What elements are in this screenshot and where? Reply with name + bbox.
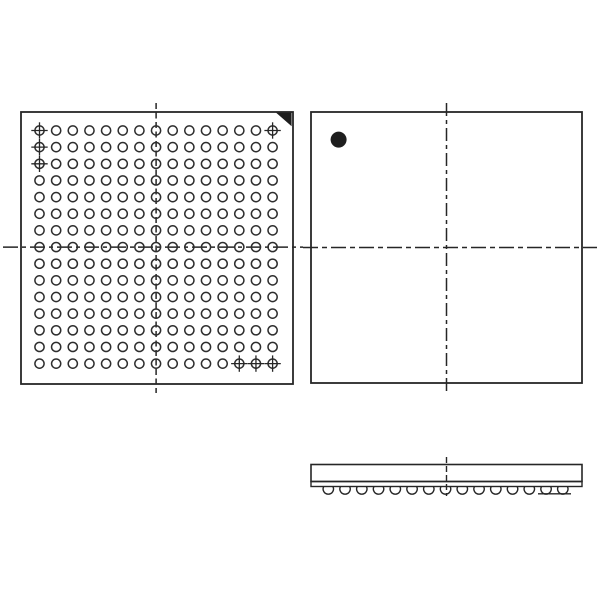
ball [35, 193, 44, 202]
ball [68, 342, 77, 351]
ball [185, 276, 194, 285]
ball [235, 226, 244, 235]
ball [235, 209, 244, 218]
ball [251, 193, 260, 202]
ball [201, 359, 210, 368]
ball [102, 143, 111, 152]
ball [118, 326, 127, 335]
ball [102, 226, 111, 235]
pin1-dot-marker [331, 132, 347, 148]
ball [52, 209, 61, 218]
ball [85, 159, 94, 168]
solder-ball-bump [457, 487, 467, 495]
ball [268, 209, 277, 218]
ball [168, 143, 177, 152]
ball [201, 276, 210, 285]
ball [251, 209, 260, 218]
ball [118, 292, 127, 301]
solder-ball-bump [558, 487, 568, 495]
ball [85, 259, 94, 268]
ball [251, 309, 260, 318]
ball [218, 326, 227, 335]
ball [102, 359, 111, 368]
ball [185, 326, 194, 335]
ball [35, 226, 44, 235]
ball [251, 126, 260, 135]
solder-ball-bump [524, 487, 534, 495]
ball [268, 259, 277, 268]
solder-ball-bump [507, 487, 517, 495]
ball [68, 176, 77, 185]
ball [201, 143, 210, 152]
ball [118, 226, 127, 235]
ball [102, 209, 111, 218]
ball [168, 359, 177, 368]
ball [52, 259, 61, 268]
ball [52, 292, 61, 301]
package-side-view [311, 457, 582, 496]
ball [251, 143, 260, 152]
ball [52, 193, 61, 202]
ball [85, 342, 94, 351]
ball [102, 292, 111, 301]
ball [118, 259, 127, 268]
ball [68, 126, 77, 135]
ball [185, 226, 194, 235]
ball [102, 176, 111, 185]
ball [135, 159, 144, 168]
ball [85, 126, 94, 135]
ball [52, 143, 61, 152]
ball [68, 259, 77, 268]
ball [35, 342, 44, 351]
ball [118, 193, 127, 202]
ball [52, 159, 61, 168]
ball [35, 259, 44, 268]
ball [218, 276, 227, 285]
ball [185, 143, 194, 152]
ball [235, 176, 244, 185]
ball [68, 209, 77, 218]
ball [35, 276, 44, 285]
ball [168, 126, 177, 135]
ball [201, 226, 210, 235]
solder-ball-bump [357, 487, 367, 495]
ball [118, 209, 127, 218]
ball [52, 342, 61, 351]
ball [235, 159, 244, 168]
ball [185, 159, 194, 168]
ball [168, 259, 177, 268]
ball [218, 309, 227, 318]
ball [52, 359, 61, 368]
ball [85, 276, 94, 285]
solder-ball-bump [491, 487, 501, 495]
ball [235, 126, 244, 135]
ball [218, 342, 227, 351]
ball [218, 226, 227, 235]
ball [68, 292, 77, 301]
solder-ball-bump [440, 487, 450, 495]
ball [268, 193, 277, 202]
ball [251, 226, 260, 235]
ball [68, 309, 77, 318]
ball [168, 326, 177, 335]
ball [251, 292, 260, 301]
ball [118, 276, 127, 285]
ball [268, 159, 277, 168]
ball [118, 309, 127, 318]
ball [135, 226, 144, 235]
ball [135, 209, 144, 218]
ball [68, 193, 77, 202]
ball [52, 276, 61, 285]
ball [68, 359, 77, 368]
ball [168, 226, 177, 235]
ball [168, 309, 177, 318]
ball [102, 193, 111, 202]
bga-bottom-view [3, 103, 303, 393]
ball [118, 143, 127, 152]
ball [201, 326, 210, 335]
ball [135, 276, 144, 285]
ball [185, 176, 194, 185]
ball [235, 309, 244, 318]
ball [135, 309, 144, 318]
ball [218, 259, 227, 268]
ball [218, 143, 227, 152]
ball [218, 176, 227, 185]
ball [168, 209, 177, 218]
ball [168, 342, 177, 351]
ball [201, 309, 210, 318]
ball [235, 259, 244, 268]
ball [85, 226, 94, 235]
ball [268, 309, 277, 318]
ball [235, 326, 244, 335]
package-outline-drawing [0, 0, 600, 600]
ball [251, 326, 260, 335]
ball [268, 276, 277, 285]
ball [85, 193, 94, 202]
ball [201, 176, 210, 185]
ball [118, 126, 127, 135]
ball [85, 326, 94, 335]
ball [68, 143, 77, 152]
ball [85, 359, 94, 368]
ball [135, 292, 144, 301]
ball [118, 342, 127, 351]
ball [168, 176, 177, 185]
ball [235, 143, 244, 152]
ball [135, 259, 144, 268]
ball [35, 209, 44, 218]
ball [118, 159, 127, 168]
pin1-corner-triangle-marker [276, 113, 292, 127]
ball [135, 326, 144, 335]
ball [52, 309, 61, 318]
ball [185, 309, 194, 318]
ball [251, 159, 260, 168]
ball [251, 259, 260, 268]
solder-ball-bump [474, 487, 484, 495]
ball [268, 326, 277, 335]
ball [102, 259, 111, 268]
ball [201, 259, 210, 268]
ball [185, 359, 194, 368]
ball [185, 259, 194, 268]
ball [251, 176, 260, 185]
ball [235, 193, 244, 202]
ball [135, 143, 144, 152]
ball [102, 126, 111, 135]
ball [235, 342, 244, 351]
side-view-ball-row [323, 487, 568, 495]
solder-ball-bump [373, 487, 383, 495]
ball [268, 342, 277, 351]
ball [135, 193, 144, 202]
ball [268, 176, 277, 185]
ball [35, 292, 44, 301]
ball [68, 326, 77, 335]
ball [35, 176, 44, 185]
ball [201, 126, 210, 135]
ball [52, 226, 61, 235]
ball [102, 276, 111, 285]
solder-ball-bump [407, 487, 417, 495]
ball [102, 309, 111, 318]
ball [268, 292, 277, 301]
ball [52, 176, 61, 185]
ball [135, 176, 144, 185]
ball [185, 209, 194, 218]
ball [68, 226, 77, 235]
ball [235, 292, 244, 301]
ball [185, 126, 194, 135]
ball [68, 276, 77, 285]
ball [52, 326, 61, 335]
ball [268, 226, 277, 235]
ball [218, 126, 227, 135]
ball [118, 359, 127, 368]
ball [102, 159, 111, 168]
ball [201, 159, 210, 168]
ball [85, 176, 94, 185]
ball [68, 159, 77, 168]
ball [102, 326, 111, 335]
ball [185, 342, 194, 351]
ball [85, 209, 94, 218]
ball [135, 126, 144, 135]
ball [35, 326, 44, 335]
solder-ball-bump [541, 487, 551, 495]
ball [201, 209, 210, 218]
ball [218, 292, 227, 301]
ball [235, 276, 244, 285]
ball [201, 342, 210, 351]
ball [168, 193, 177, 202]
solder-ball-bump [424, 487, 434, 495]
ball [168, 159, 177, 168]
ball [135, 342, 144, 351]
ball [268, 143, 277, 152]
ball [185, 292, 194, 301]
ball [201, 292, 210, 301]
ball [118, 176, 127, 185]
ball [85, 292, 94, 301]
ball [218, 209, 227, 218]
ball [185, 193, 194, 202]
ball [102, 342, 111, 351]
package-top-view [303, 103, 597, 394]
ball [135, 359, 144, 368]
ball [168, 276, 177, 285]
solder-ball-bump [323, 487, 333, 495]
ball [201, 193, 210, 202]
ball [251, 342, 260, 351]
ball [52, 126, 61, 135]
ball [85, 309, 94, 318]
ball [35, 359, 44, 368]
ball [218, 159, 227, 168]
solder-ball-bump [340, 487, 350, 495]
solder-ball-bump [390, 487, 400, 495]
ball [218, 359, 227, 368]
ball [85, 143, 94, 152]
ball [251, 276, 260, 285]
ball [168, 292, 177, 301]
ball [218, 193, 227, 202]
ball [35, 309, 44, 318]
package-outline-drawing-page [0, 0, 600, 600]
